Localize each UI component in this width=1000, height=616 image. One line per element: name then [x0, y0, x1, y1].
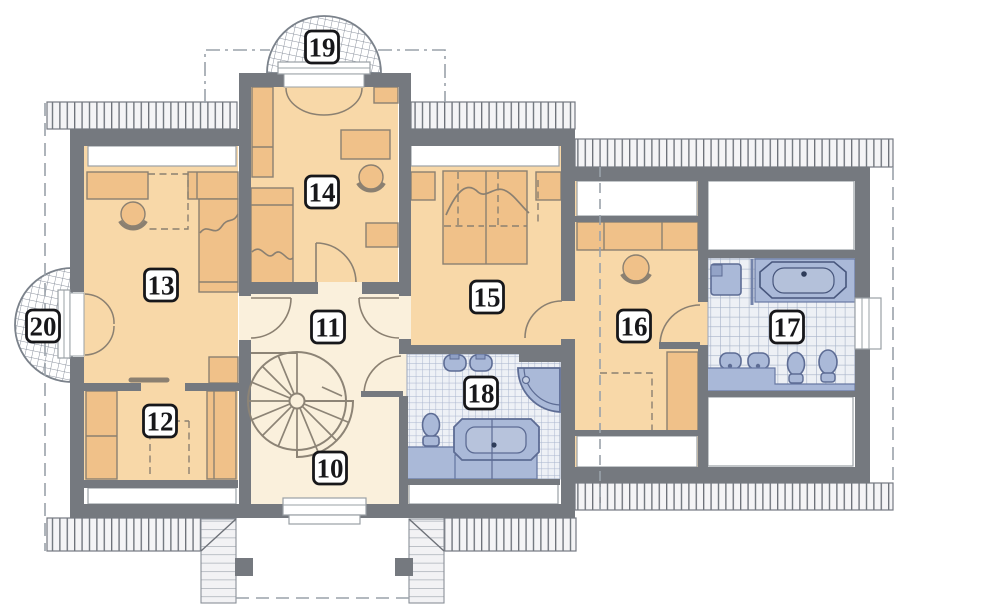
svg-text:11: 11 — [315, 313, 341, 343]
svg-text:14: 14 — [309, 178, 336, 208]
svg-text:19: 19 — [309, 33, 336, 63]
svg-text:12: 12 — [147, 407, 174, 437]
svg-text:10: 10 — [317, 454, 344, 484]
svg-text:15: 15 — [474, 283, 501, 313]
svg-text:16: 16 — [621, 312, 648, 342]
svg-text:13: 13 — [148, 271, 175, 301]
svg-text:18: 18 — [468, 379, 495, 409]
svg-text:17: 17 — [774, 313, 801, 343]
svg-text:20: 20 — [30, 312, 57, 342]
